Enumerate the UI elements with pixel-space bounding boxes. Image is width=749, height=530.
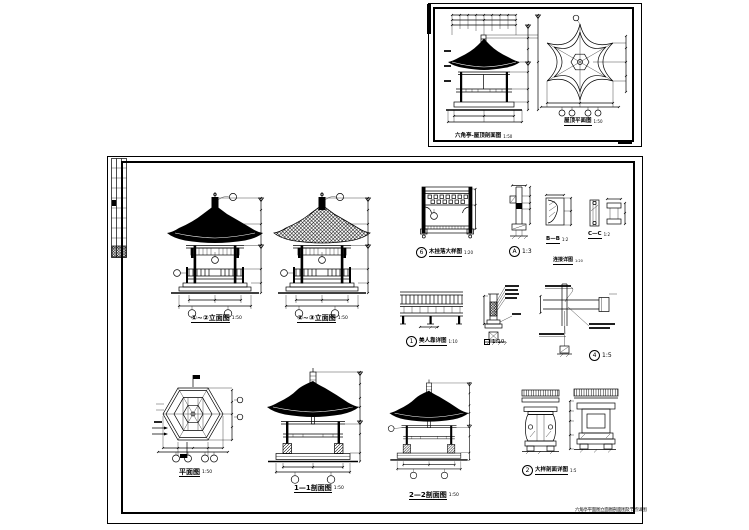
caption-section-2: 2—2剖面图 1:50 [409, 491, 459, 500]
caption-bb: B—B 1:2 [546, 235, 568, 244]
caption-scale: 1:5 [570, 468, 576, 474]
caption-cc: C—C 1:2 [588, 230, 610, 239]
caption-title: 木挂落大样图 [429, 248, 462, 257]
detail-number-bubble: 2 [522, 465, 533, 476]
caption-scale: 1:50 [449, 493, 459, 499]
caption-scale: 1:50 [338, 316, 348, 322]
caption-connection: 连接详图 1:20 [553, 256, 583, 265]
detail-number-bubble: 1 [406, 336, 417, 347]
cad-drawing-workspace: 六角亭-屋顶剖面图 1:50 屋顶平面图 1:50 ①~②立面图 [0, 0, 749, 530]
revision-strip-table [111, 158, 127, 258]
caption-title: 屋顶平面图 [564, 117, 592, 126]
detail-a-drawing [506, 184, 536, 244]
caption-top-right: 屋顶平面图 1:50 [564, 117, 603, 126]
caption-title: 连接详图 [553, 256, 573, 265]
caption-scale: 1:20 [464, 250, 473, 256]
caption-scale: 1:3 [522, 249, 532, 255]
sheet-title-note: 六角亭平面图立面图剖面图及节点详图 [575, 508, 646, 513]
caption-title: ①~②立面图 [191, 314, 230, 323]
section-2-drawing [386, 372, 472, 492]
caption-title: 美人靠详图 [419, 337, 447, 346]
caption-scale: 1:5 [602, 353, 612, 359]
top-sheet-stamp [618, 140, 632, 144]
caption-top-left: 六角亭-屋顶剖面图 1:50 [455, 132, 512, 141]
caption-scale: 1:10 [449, 339, 458, 345]
caption-scale: 1:2 [562, 237, 568, 243]
caption-scale: 1:20 [575, 258, 583, 264]
eave-corner-detail-drawing [537, 280, 627, 362]
caption-title: 2—2剖面图 [409, 491, 447, 500]
caption-bench: 1 美人靠详图 1:10 [406, 336, 458, 347]
elevation-2-drawing [272, 192, 372, 327]
detail-letter-bubble: A [509, 246, 520, 257]
elevation-1-drawing [165, 192, 265, 327]
caption-eave: 4 1:5 [589, 350, 612, 361]
bench-detail-drawing [398, 289, 465, 331]
caption-scale: 1:50 [334, 486, 344, 492]
ground-symbol [484, 339, 490, 345]
caption-title: ②~③立面图 [297, 314, 336, 323]
caption-title: B—B [546, 235, 560, 244]
caption-scale: 1:50 [232, 316, 242, 322]
caption-pedestal: 2 大样剖面详图 1:5 [522, 465, 576, 476]
caption-section-1: 1—1剖面图 1:50 [294, 484, 344, 493]
top-sheet-binding-tab [427, 4, 431, 34]
caption-scale: 1:50 [594, 119, 603, 125]
caption-detail-a: A 1:3 [509, 246, 532, 257]
caption-title: 六角亭-屋顶剖面图 [455, 132, 501, 141]
caption-scale: 1:2 [604, 232, 610, 238]
caption-lattice: 6 木挂落大样图 1:20 [416, 247, 473, 258]
section-1-drawing [263, 368, 363, 490]
caption-plan: 平面图 1:50 [179, 468, 212, 477]
top-roof-plan-drawing [536, 14, 632, 126]
caption-title: C—C [588, 230, 602, 239]
caption-title: 大样剖面详图 [535, 466, 568, 475]
caption-elevation-2: ②~③立面图 1:50 [297, 314, 348, 323]
section-bb-drawing [544, 193, 578, 233]
caption-scale: 1:50 [202, 470, 212, 476]
caption-scale: 1:50 [503, 134, 512, 140]
caption-title: 1—1剖面图 [294, 484, 332, 493]
top-pavilion-section-drawing [444, 11, 546, 133]
detail-number-bubble: 6 [416, 247, 427, 258]
lattice-detail-drawing [419, 185, 477, 241]
pedestal-detail-drawing [518, 387, 624, 463]
caption-column-base: 1:10 [484, 339, 504, 345]
section-cc-drawing [587, 197, 627, 233]
detail-number-bubble: 4 [589, 350, 600, 361]
caption-scale: 1:10 [492, 339, 504, 345]
caption-title: 平面图 [179, 468, 200, 477]
caption-elevation-1: ①~②立面图 1:50 [191, 314, 242, 323]
